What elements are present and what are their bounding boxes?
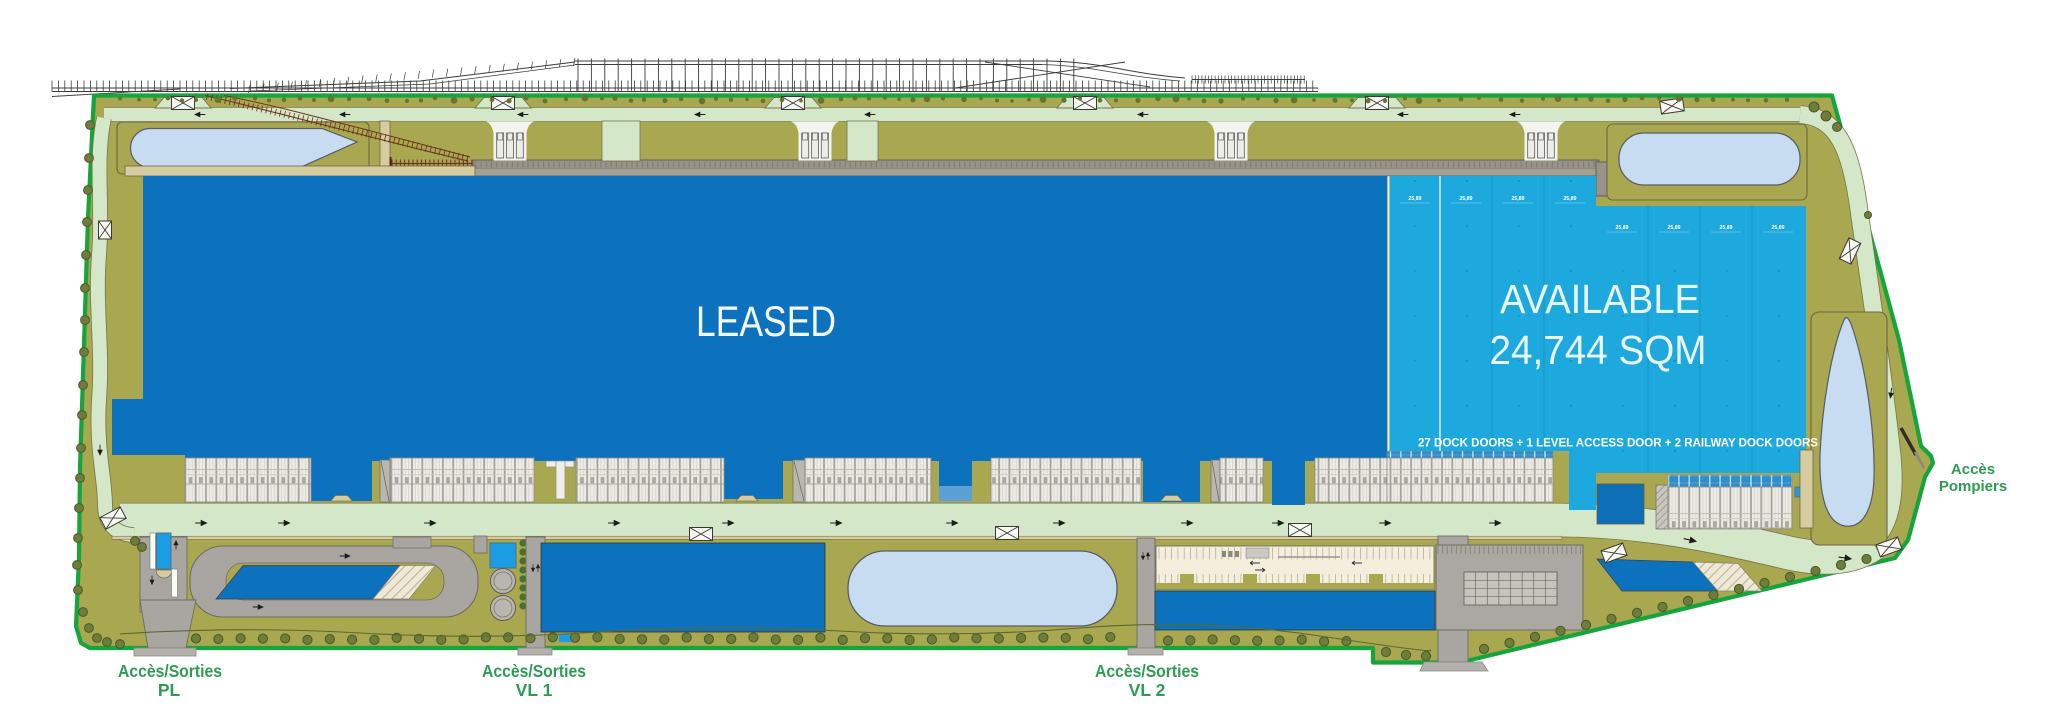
- svg-text:Accès/Sorties: Accès/Sorties: [118, 661, 222, 681]
- svg-text:Pompiers: Pompiers: [1939, 478, 2007, 495]
- svg-text:25,89: 25,89: [1512, 196, 1525, 202]
- svg-text:VL 1: VL 1: [516, 680, 553, 700]
- svg-text:AVAILABLE: AVAILABLE: [1500, 276, 1700, 322]
- svg-text:25,89: 25,89: [1409, 196, 1422, 202]
- svg-text:25,89: 25,89: [1720, 225, 1733, 231]
- svg-text:Accès/Sorties: Accès/Sorties: [482, 661, 586, 681]
- svg-text:25,89: 25,89: [1564, 196, 1577, 202]
- svg-text:25,89: 25,89: [1668, 225, 1681, 231]
- svg-text:Accès: Accès: [1951, 461, 1995, 478]
- svg-text:25,89: 25,89: [1616, 225, 1629, 231]
- svg-text:25,89: 25,89: [1460, 196, 1473, 202]
- svg-text:Accès/Sorties: Accès/Sorties: [1095, 661, 1199, 681]
- svg-text:24,744 SQM: 24,744 SQM: [1490, 327, 1707, 373]
- svg-text:VL 2: VL 2: [1129, 680, 1166, 700]
- svg-text:27 DOCK DOORS + 1 LEVEL ACCESS: 27 DOCK DOORS + 1 LEVEL ACCESS DOOR + 2 …: [1418, 436, 1818, 450]
- svg-text:PL: PL: [158, 680, 181, 700]
- svg-text:LEASED: LEASED: [696, 298, 836, 346]
- svg-text:25,89: 25,89: [1772, 225, 1785, 231]
